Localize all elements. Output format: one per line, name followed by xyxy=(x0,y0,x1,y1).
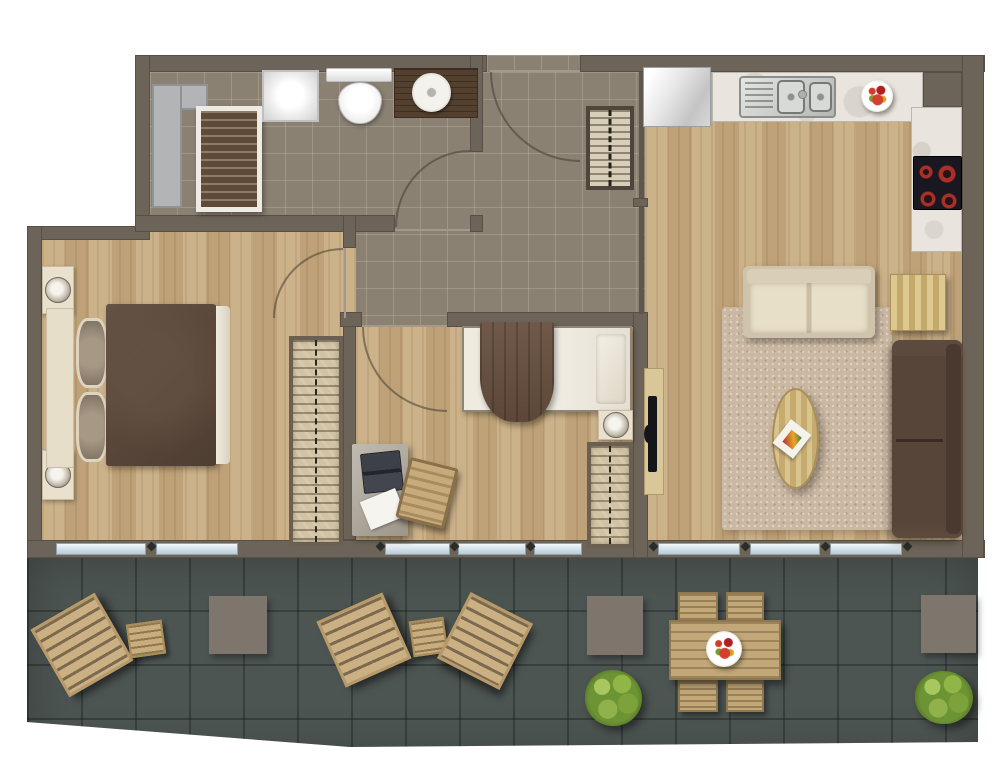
wall-outer-left-upper xyxy=(135,55,150,240)
window-living-1 xyxy=(658,543,740,555)
fruit-bowl-kitchen xyxy=(861,80,893,112)
window-master-2 xyxy=(156,543,238,555)
terrace-mat-2 xyxy=(587,596,643,655)
toilet-cistern xyxy=(326,68,392,82)
wall-outer-step xyxy=(27,226,150,240)
bathroom-basin xyxy=(412,73,451,112)
window-living-2 xyxy=(750,543,820,555)
terrace-side-table-1 xyxy=(126,620,166,659)
dining-chair-3 xyxy=(678,680,718,712)
door-leaf-master-bedroom xyxy=(344,248,346,318)
refrigerator xyxy=(643,67,711,127)
bathroom-slatted-cabinet xyxy=(196,106,262,212)
terrace-plant-2 xyxy=(915,671,973,724)
double-bed-headboard xyxy=(46,308,74,468)
pillow-top xyxy=(76,318,108,388)
sink-bowl-small xyxy=(809,82,832,112)
sofa-two-seater xyxy=(743,266,875,338)
single-bed-pillow xyxy=(596,334,626,404)
double-bed-duvet xyxy=(106,304,218,466)
single-bed-blanket xyxy=(480,322,554,422)
apartment-floor-plan xyxy=(0,0,1000,782)
window-living-3 xyxy=(830,543,902,555)
pillow-bottom xyxy=(76,392,108,462)
terrace-mat-3 xyxy=(921,595,976,653)
fruit-bowl-dining xyxy=(706,631,742,667)
wardrobe-bedroom2 xyxy=(587,442,633,548)
door-leaf-bedroom2 xyxy=(362,325,447,327)
cooktop-4-burners xyxy=(913,156,962,210)
wall-top-east xyxy=(580,55,985,72)
kitchen-faucet xyxy=(798,90,807,99)
window-bedroom2-3 xyxy=(534,543,582,555)
shower-tray xyxy=(262,70,319,122)
door-leaf-entry xyxy=(490,70,580,72)
entry-closet xyxy=(586,106,634,190)
wall-outer-right xyxy=(962,55,984,558)
dining-chair-1 xyxy=(678,592,718,622)
dining-chair-4 xyxy=(726,680,764,712)
door-leaf-bathroom xyxy=(395,229,470,231)
service-duct-vertical xyxy=(152,84,182,208)
wall-bathroom-south-east xyxy=(470,215,483,232)
wall-stub-kitchen xyxy=(633,198,648,207)
nightstand-master-top xyxy=(42,266,74,314)
laptop xyxy=(360,450,404,494)
window-master-1 xyxy=(56,543,146,555)
terrace-mat-1 xyxy=(209,596,267,654)
dining-chair-2 xyxy=(726,592,764,622)
television xyxy=(648,396,657,472)
striped-ottoman xyxy=(890,274,946,331)
double-bed-sheet-fold xyxy=(216,306,230,464)
wall-bathroom-south-west xyxy=(135,215,395,232)
wall-corner-kitchen xyxy=(923,72,962,107)
wardrobe-master xyxy=(289,336,343,546)
wall-outer-left xyxy=(27,226,42,548)
sofa-brown-chaise xyxy=(892,340,963,538)
nightstand-bedroom2 xyxy=(598,410,633,440)
window-bedroom2-1 xyxy=(385,543,450,555)
terrace-plant-1 xyxy=(585,670,642,726)
window-bedroom2-2 xyxy=(458,543,526,555)
sink-drainboard xyxy=(745,82,773,112)
wall-master-hall-upper xyxy=(343,215,356,248)
